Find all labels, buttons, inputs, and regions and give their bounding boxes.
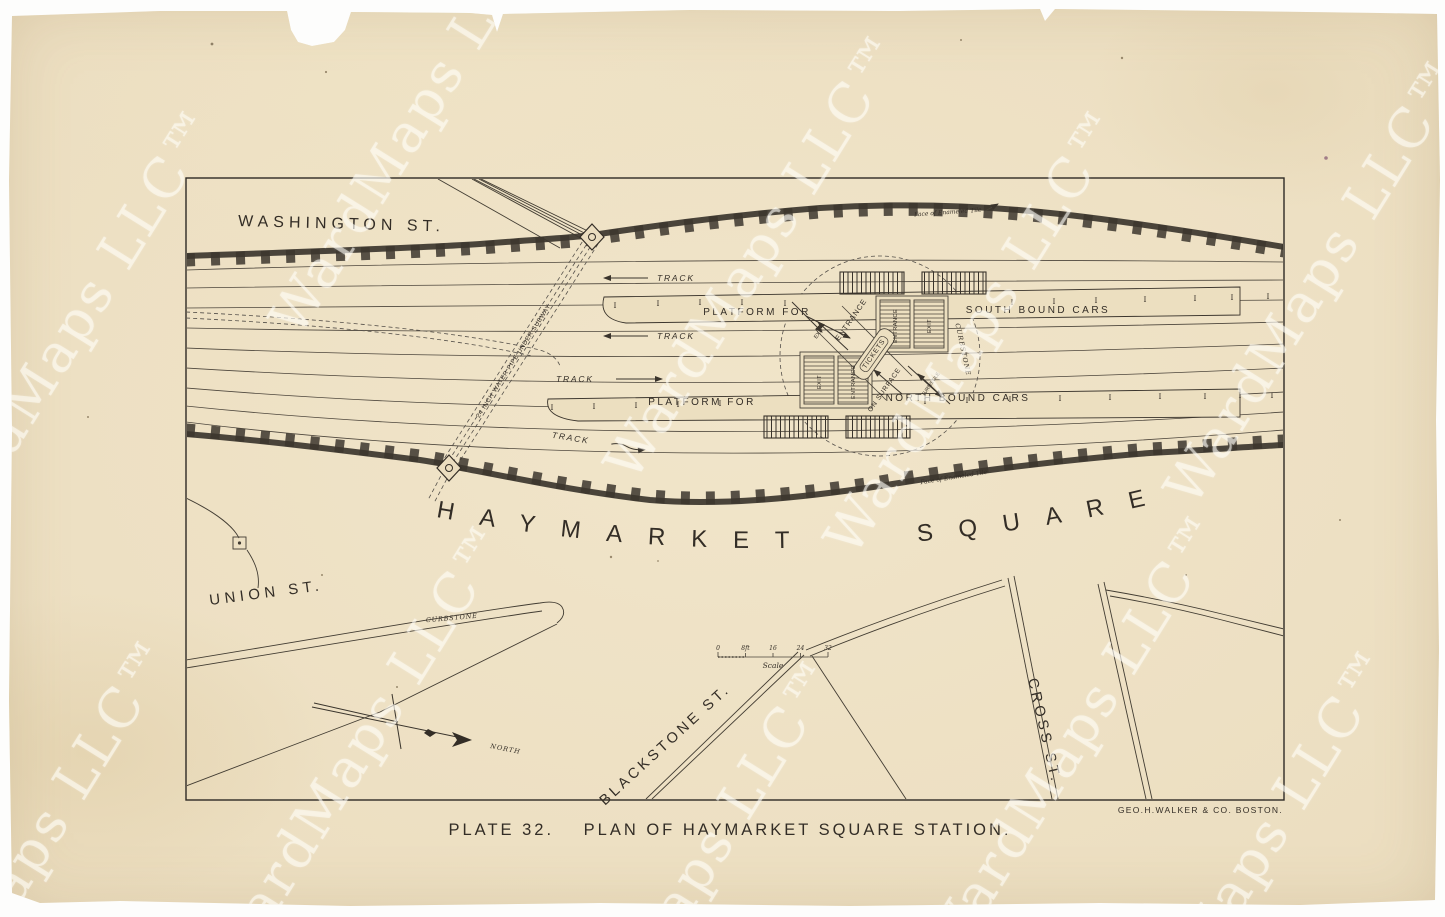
stair-railing (922, 272, 986, 294)
svg-text:I: I (1095, 296, 1098, 305)
plate-title: PLAN OF HAYMARKET SQUARE STATION. (584, 821, 1012, 839)
paper-sheet: 24 INCH WATER PIPE UNDER SUBWAY III II I… (0, 0, 1445, 917)
svg-text:I: I (1204, 392, 1207, 401)
svg-text:TRACK: TRACK (657, 273, 695, 283)
stair-exit-label: EXIT (817, 375, 823, 389)
north-label: NORTH (489, 742, 522, 756)
stair-exit-label: EXIT (927, 319, 933, 333)
north-arrow-icon: NORTH (312, 694, 521, 756)
svg-text:I: I (657, 299, 660, 308)
svg-text:I: I (1144, 295, 1147, 304)
svg-text:I: I (593, 402, 596, 411)
south-platform-for-label: PLATFORM FOR (703, 307, 811, 318)
svg-text:I: I (551, 403, 554, 412)
svg-text:0: 0 (716, 645, 720, 652)
station-plan-drawing: 24 INCH WATER PIPE UNDER SUBWAY III II I… (0, 0, 1445, 917)
union-st-label: UNION ST. (208, 577, 324, 609)
scan-background: 24 INCH WATER PIPE UNDER SUBWAY III II I… (0, 0, 1445, 917)
svg-text:TRACK: TRACK (657, 331, 695, 341)
svg-text:16: 16 (769, 645, 777, 652)
stair-entrance-label: ENTRANCE (851, 365, 857, 399)
cartographer-credit: GEO.H.WALKER & CO. BOSTON. (1118, 805, 1283, 815)
svg-text:24: 24 (796, 645, 805, 652)
svg-text:I: I (1059, 394, 1062, 403)
track-label-1: TRACK (604, 273, 695, 283)
svg-text:TRACK: TRACK (551, 430, 590, 446)
svg-text:I: I (741, 298, 744, 307)
svg-text:32: 32 (824, 645, 832, 652)
stair-entrance-label: ENTRANCE (893, 309, 899, 343)
svg-text:I: I (1267, 292, 1270, 301)
svg-text:I: I (1239, 391, 1242, 400)
blackstone-st-label: BLACKSTONE ST. (597, 681, 734, 808)
svg-text:I: I (1271, 391, 1274, 400)
stair-railing (846, 416, 910, 438)
scale-label: Scale (763, 661, 784, 670)
stair-railing (764, 416, 828, 438)
svg-text:I: I (1194, 294, 1197, 303)
svg-text:I: I (614, 301, 617, 310)
scale-ticks: 0 8ft 16 24 32 (716, 645, 832, 652)
water-pipe-band (428, 179, 598, 503)
cross-st-label: CROSS ST. (1024, 677, 1064, 786)
svg-text:8ft: 8ft (741, 645, 750, 652)
north-platform-for-label: PLATFORM FOR (648, 397, 756, 408)
haymarket-square-label: HAYMARKET SQUARE (435, 479, 1173, 554)
svg-text:I: I (699, 298, 702, 307)
plate-caption: PLATE 32. PLAN OF HAYMARKET SQUARE STATI… (448, 821, 1011, 839)
track-label-2: TRACK (604, 331, 695, 341)
stair-railing (840, 272, 904, 294)
plate-number: PLATE 32. (448, 821, 554, 839)
svg-text:I: I (1159, 392, 1162, 401)
washington-st-label: WASHINGTON ST. (238, 213, 445, 235)
svg-text:I: I (635, 401, 638, 410)
north-platform-cars-label: NORTH BOUND CARS (886, 393, 1031, 404)
plan-border (186, 178, 1284, 800)
scale-bar: 0 8ft 16 24 32 Scale (716, 645, 832, 670)
svg-text:TRACK: TRACK (556, 374, 594, 384)
pipe-note-label: 24 INCH WATER PIPE UNDER SUBWAY (475, 303, 552, 419)
svg-text:I: I (1231, 293, 1234, 302)
south-platform-cars-label: SOUTH BOUND CARS (966, 305, 1110, 316)
station-curbstone-label: CURBSTONE (953, 323, 972, 377)
svg-text:I: I (1109, 393, 1112, 402)
dashed-guide-lines (186, 312, 560, 366)
